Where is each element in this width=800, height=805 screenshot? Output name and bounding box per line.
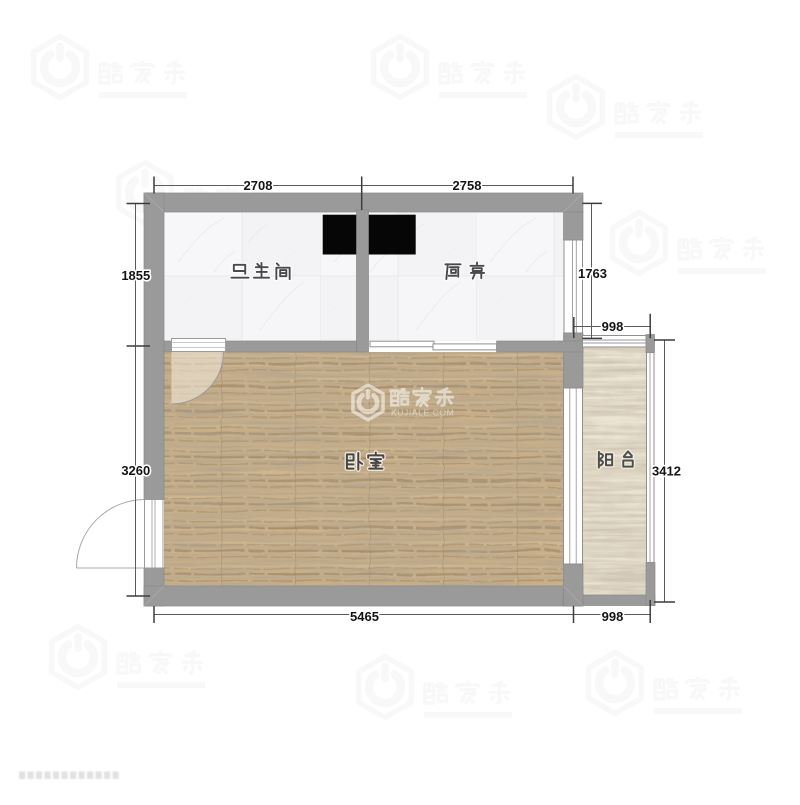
svg-text:KUJIALE.COM: KUJIALE.COM [391, 408, 454, 418]
svg-text:5465: 5465 [350, 609, 379, 624]
svg-text:3412: 3412 [652, 464, 681, 479]
svg-text:998: 998 [602, 609, 624, 624]
svg-text:2758: 2758 [453, 178, 482, 193]
svg-text:1763: 1763 [578, 266, 607, 281]
svg-text:2708: 2708 [244, 178, 273, 193]
svg-text:3260: 3260 [121, 463, 150, 478]
svg-text:998: 998 [602, 319, 624, 334]
svg-text:1855: 1855 [121, 268, 150, 283]
